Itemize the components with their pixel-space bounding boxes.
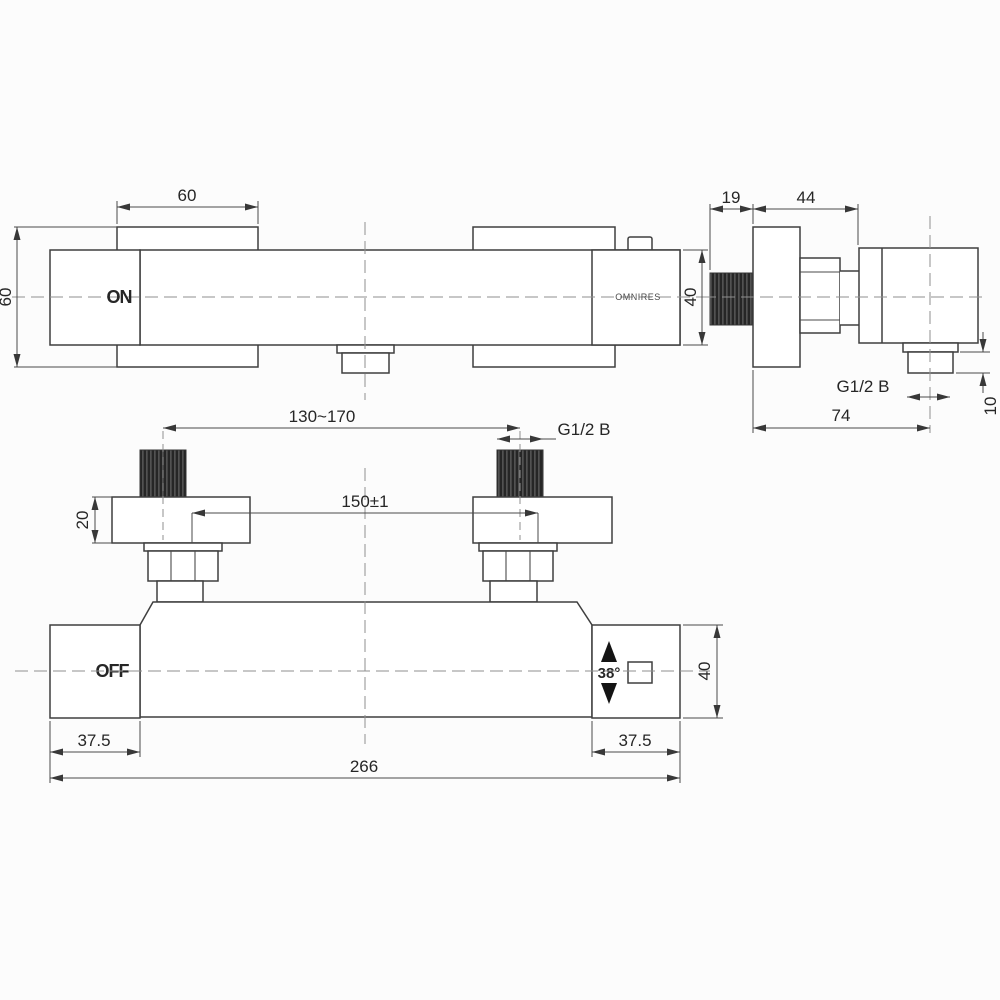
- dim-inlet-spacing-label: 150±1: [341, 492, 388, 511]
- brand-label: OMNIRES: [615, 292, 661, 302]
- inlet-thread-label: G1/2 B: [558, 420, 611, 439]
- wall-thread: [710, 273, 755, 325]
- inlet-neck-left: [157, 581, 203, 602]
- on-label: ON: [107, 287, 132, 307]
- dim-handle-left-width-label: 37.5: [77, 731, 110, 750]
- front-view: ON OMNIRES 60 60 40: [0, 186, 708, 400]
- union-nut-left: [148, 551, 218, 581]
- dim-plate-thickness-label: 20: [73, 511, 92, 530]
- shower-mixer-drawing: ON OMNIRES 60 60 40: [0, 0, 1000, 1000]
- dim-outlet-height: 10: [956, 332, 1000, 415]
- inlet-neck-right: [490, 581, 537, 602]
- dim-plate-thickness: 20: [73, 497, 112, 543]
- dim-plate-width-label: 60: [178, 186, 197, 205]
- eccentric-plate-right: [473, 497, 612, 543]
- eccentric-plate-left: [112, 497, 250, 543]
- dim-outlet-thread: G1/2 B: [837, 377, 950, 401]
- dim-handle-height-label: 40: [695, 662, 714, 681]
- dim-handle-left-width: 37.5: [50, 721, 140, 757]
- dim-thread-length-label: 19: [722, 188, 741, 207]
- mixer-body-side: [859, 248, 978, 343]
- dim-handle-right-width-label: 37.5: [618, 731, 651, 750]
- side-view: 19 44 74 10 G1/2 B: [703, 188, 1000, 433]
- union-nut-right: [483, 551, 553, 581]
- safety-stop-button: [628, 662, 652, 683]
- neck-fill: [840, 271, 859, 325]
- temperature-stop-label: 38°: [598, 665, 621, 682]
- dim-outlet-height-label: 10: [981, 397, 1000, 416]
- dim-total-width: 266: [50, 757, 680, 783]
- mixer-bar-bottom: [140, 602, 592, 717]
- dim-total-width-label: 266: [350, 757, 378, 776]
- nut-flange-right: [479, 543, 557, 551]
- dim-body-height-label: 40: [681, 288, 700, 307]
- technical-drawing-page: ON OMNIRES 60 60 40: [0, 0, 1000, 1000]
- bottom-view: 38° OFF 130~170 G1/2 B 150±1: [15, 407, 723, 783]
- dim-inlet-thread: G1/2 B: [497, 420, 610, 443]
- dim-body-depth-label: 44: [797, 188, 816, 207]
- dim-plate-height-label: 60: [0, 288, 15, 307]
- dim-inlet-spacing-range: 130~170: [163, 407, 520, 432]
- dim-plate-width: 60: [117, 186, 258, 224]
- dim-inlet-spacing-range-label: 130~170: [289, 407, 356, 426]
- dim-handle-right-width: 37.5: [592, 721, 680, 757]
- nut-flange-left: [144, 543, 222, 551]
- dim-total-depth-label: 74: [832, 406, 851, 425]
- dim-thread-length: 19: [710, 188, 753, 270]
- outlet-thread-label: G1/2 B: [837, 377, 890, 396]
- connector-nut-side: [800, 258, 840, 333]
